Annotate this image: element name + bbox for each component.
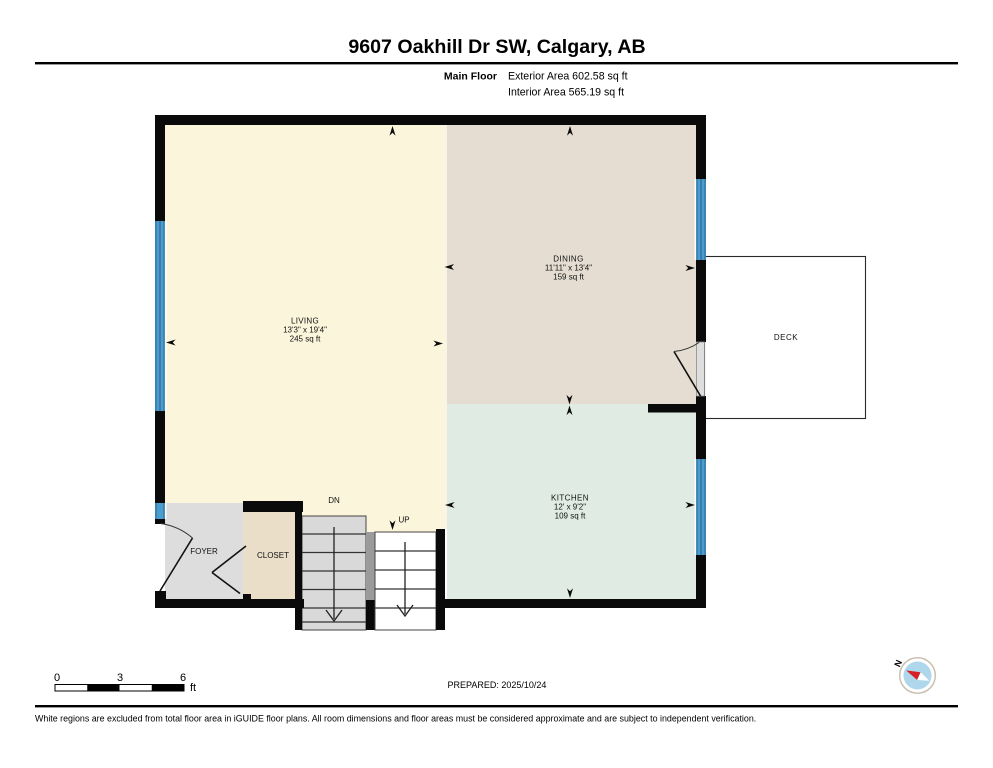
svg-text:9607 Oakhill Dr SW, Calgary, A: 9607 Oakhill Dr SW, Calgary, AB xyxy=(348,36,645,58)
svg-text:11'11" x 13'4": 11'11" x 13'4" xyxy=(545,264,592,273)
svg-text:109 sq ft: 109 sq ft xyxy=(555,512,586,521)
svg-text:DN: DN xyxy=(328,496,340,505)
svg-text:12' x 9'2": 12' x 9'2" xyxy=(554,503,586,512)
svg-text:ft: ft xyxy=(190,682,196,694)
svg-text:Interior Area 565.19 sq ft: Interior Area 565.19 sq ft xyxy=(508,87,624,99)
svg-text:6: 6 xyxy=(180,672,186,684)
svg-text:KITCHEN: KITCHEN xyxy=(551,494,589,503)
svg-text:Exterior Area 602.58 sq ft: Exterior Area 602.58 sq ft xyxy=(508,71,628,83)
svg-text:0: 0 xyxy=(54,672,60,684)
svg-text:White regions are excluded fro: White regions are excluded from total fl… xyxy=(35,714,756,724)
svg-text:245 sq ft: 245 sq ft xyxy=(290,335,321,344)
svg-text:UP: UP xyxy=(398,516,409,525)
svg-text:CLOSET: CLOSET xyxy=(257,551,289,560)
svg-text:13'3" x 19'4": 13'3" x 19'4" xyxy=(283,326,327,335)
svg-text:FOYER: FOYER xyxy=(190,547,218,556)
svg-text:DECK: DECK xyxy=(774,333,798,342)
svg-text:3: 3 xyxy=(117,672,123,684)
svg-text:Main Floor: Main Floor xyxy=(444,71,497,83)
svg-text:DINING: DINING xyxy=(553,255,583,264)
svg-text:LIVING: LIVING xyxy=(291,317,319,326)
svg-text:159 sq ft: 159 sq ft xyxy=(553,273,584,282)
svg-text:PREPARED: 2025/10/24: PREPARED: 2025/10/24 xyxy=(448,680,547,690)
